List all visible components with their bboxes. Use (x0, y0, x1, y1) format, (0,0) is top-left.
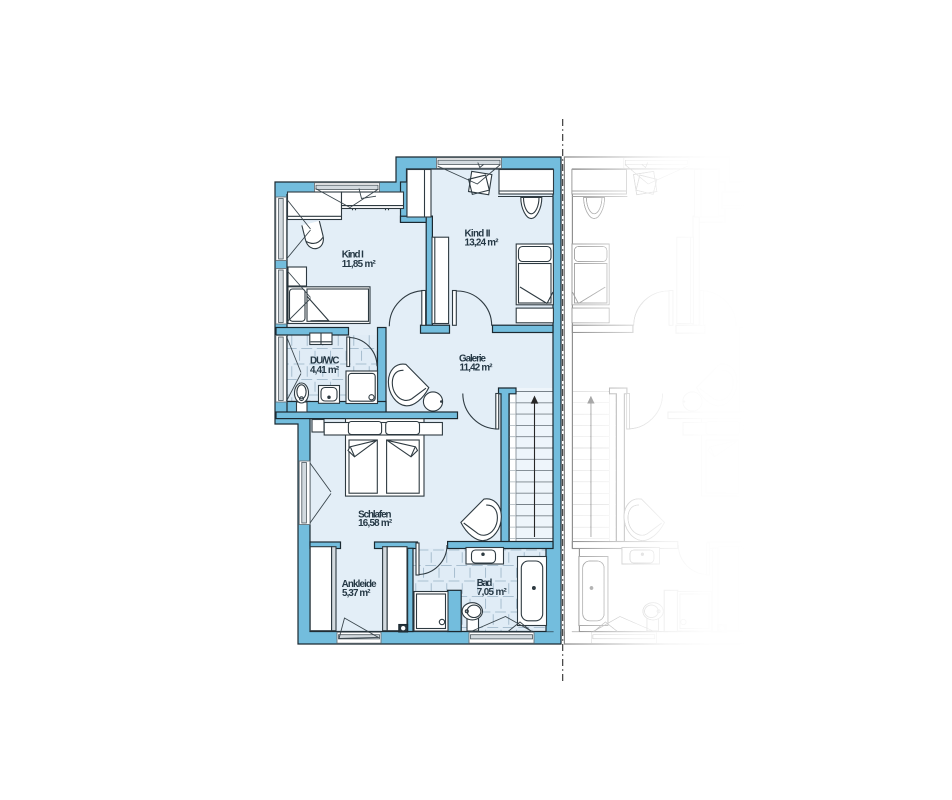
svg-text:16,58 m²: 16,58 m² (358, 518, 393, 529)
svg-text:13,24 m²: 13,24 m² (465, 238, 500, 249)
svg-text:4,41 m²: 4,41 m² (310, 365, 340, 376)
svg-text:7,05 m²: 7,05 m² (477, 587, 508, 598)
svg-text:5,37 m²: 5,37 m² (342, 588, 371, 599)
svg-text:11,85 m²: 11,85 m² (342, 259, 377, 270)
svg-text:11,42 m²: 11,42 m² (460, 363, 494, 374)
